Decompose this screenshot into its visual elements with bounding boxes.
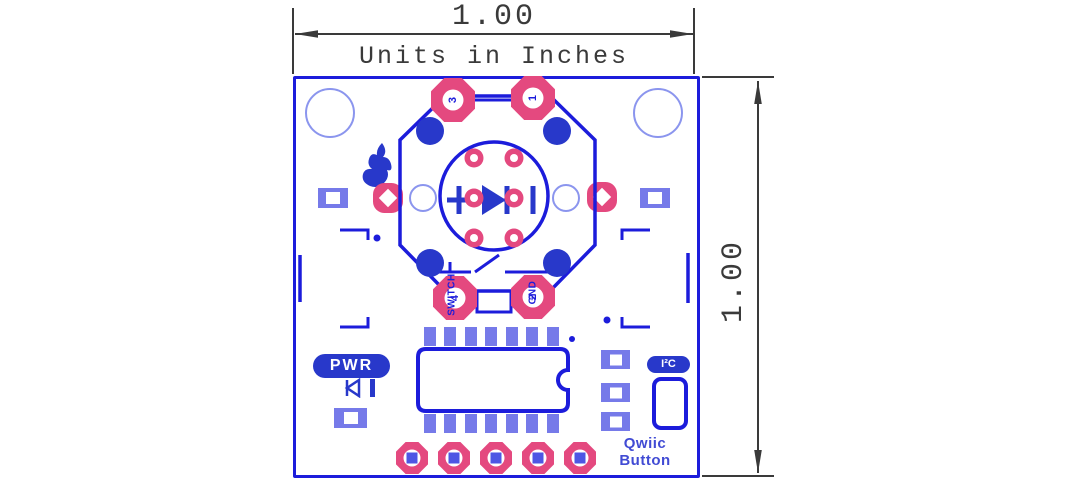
smd-pad-window bbox=[344, 412, 358, 424]
smd-pad-window bbox=[610, 416, 622, 427]
pad-square bbox=[491, 453, 502, 464]
ic-pin1-dot bbox=[569, 336, 575, 342]
net-label-switch: SWITCH bbox=[447, 260, 458, 330]
net-label-gnd: GND bbox=[528, 273, 539, 313]
dot-marker-right bbox=[604, 317, 611, 324]
height-dimension-value: 1.00 bbox=[717, 221, 751, 341]
mechanical-drawing: 1.00 Units in Inches 1.00 bbox=[0, 0, 1080, 484]
pwr-led-pad bbox=[334, 408, 367, 428]
dot-marker-left bbox=[374, 235, 381, 242]
pwr-led-symbol-icon bbox=[343, 378, 377, 398]
right-pad-2 bbox=[601, 383, 630, 402]
pad-square bbox=[449, 453, 460, 464]
i2c-label: I²C bbox=[647, 356, 690, 373]
pwr-label: PWR bbox=[313, 354, 390, 378]
units-note: Units in Inches bbox=[344, 42, 644, 71]
product-name-line2: Button bbox=[596, 452, 694, 469]
right-pad-3 bbox=[601, 412, 630, 431]
extension-line-right bbox=[693, 8, 695, 74]
width-dimension-line bbox=[292, 27, 696, 41]
pad-square bbox=[533, 453, 544, 464]
ic-footprint bbox=[418, 327, 575, 433]
pad-square bbox=[407, 453, 418, 464]
smd-pad-window bbox=[610, 387, 622, 398]
ic-body bbox=[418, 349, 568, 411]
extension-line-left bbox=[292, 8, 294, 74]
product-name: Qwiic Button bbox=[596, 435, 694, 469]
button-pad-3: 3 bbox=[431, 78, 475, 122]
pad-square bbox=[575, 453, 586, 464]
pad-number: 3 bbox=[447, 97, 459, 103]
height-dimension-line bbox=[751, 78, 765, 476]
qwiic-connector-outline bbox=[652, 377, 688, 430]
product-name-line1: Qwiic bbox=[596, 435, 694, 452]
smd-pad-window bbox=[610, 354, 622, 365]
side-hole-right bbox=[553, 185, 579, 211]
pcb-board-outline: 3 1 4 2 SWITCH GND PWR bbox=[293, 76, 700, 478]
pad-number: 1 bbox=[527, 95, 539, 101]
side-hole-left bbox=[410, 185, 436, 211]
right-pad-1 bbox=[601, 350, 630, 369]
